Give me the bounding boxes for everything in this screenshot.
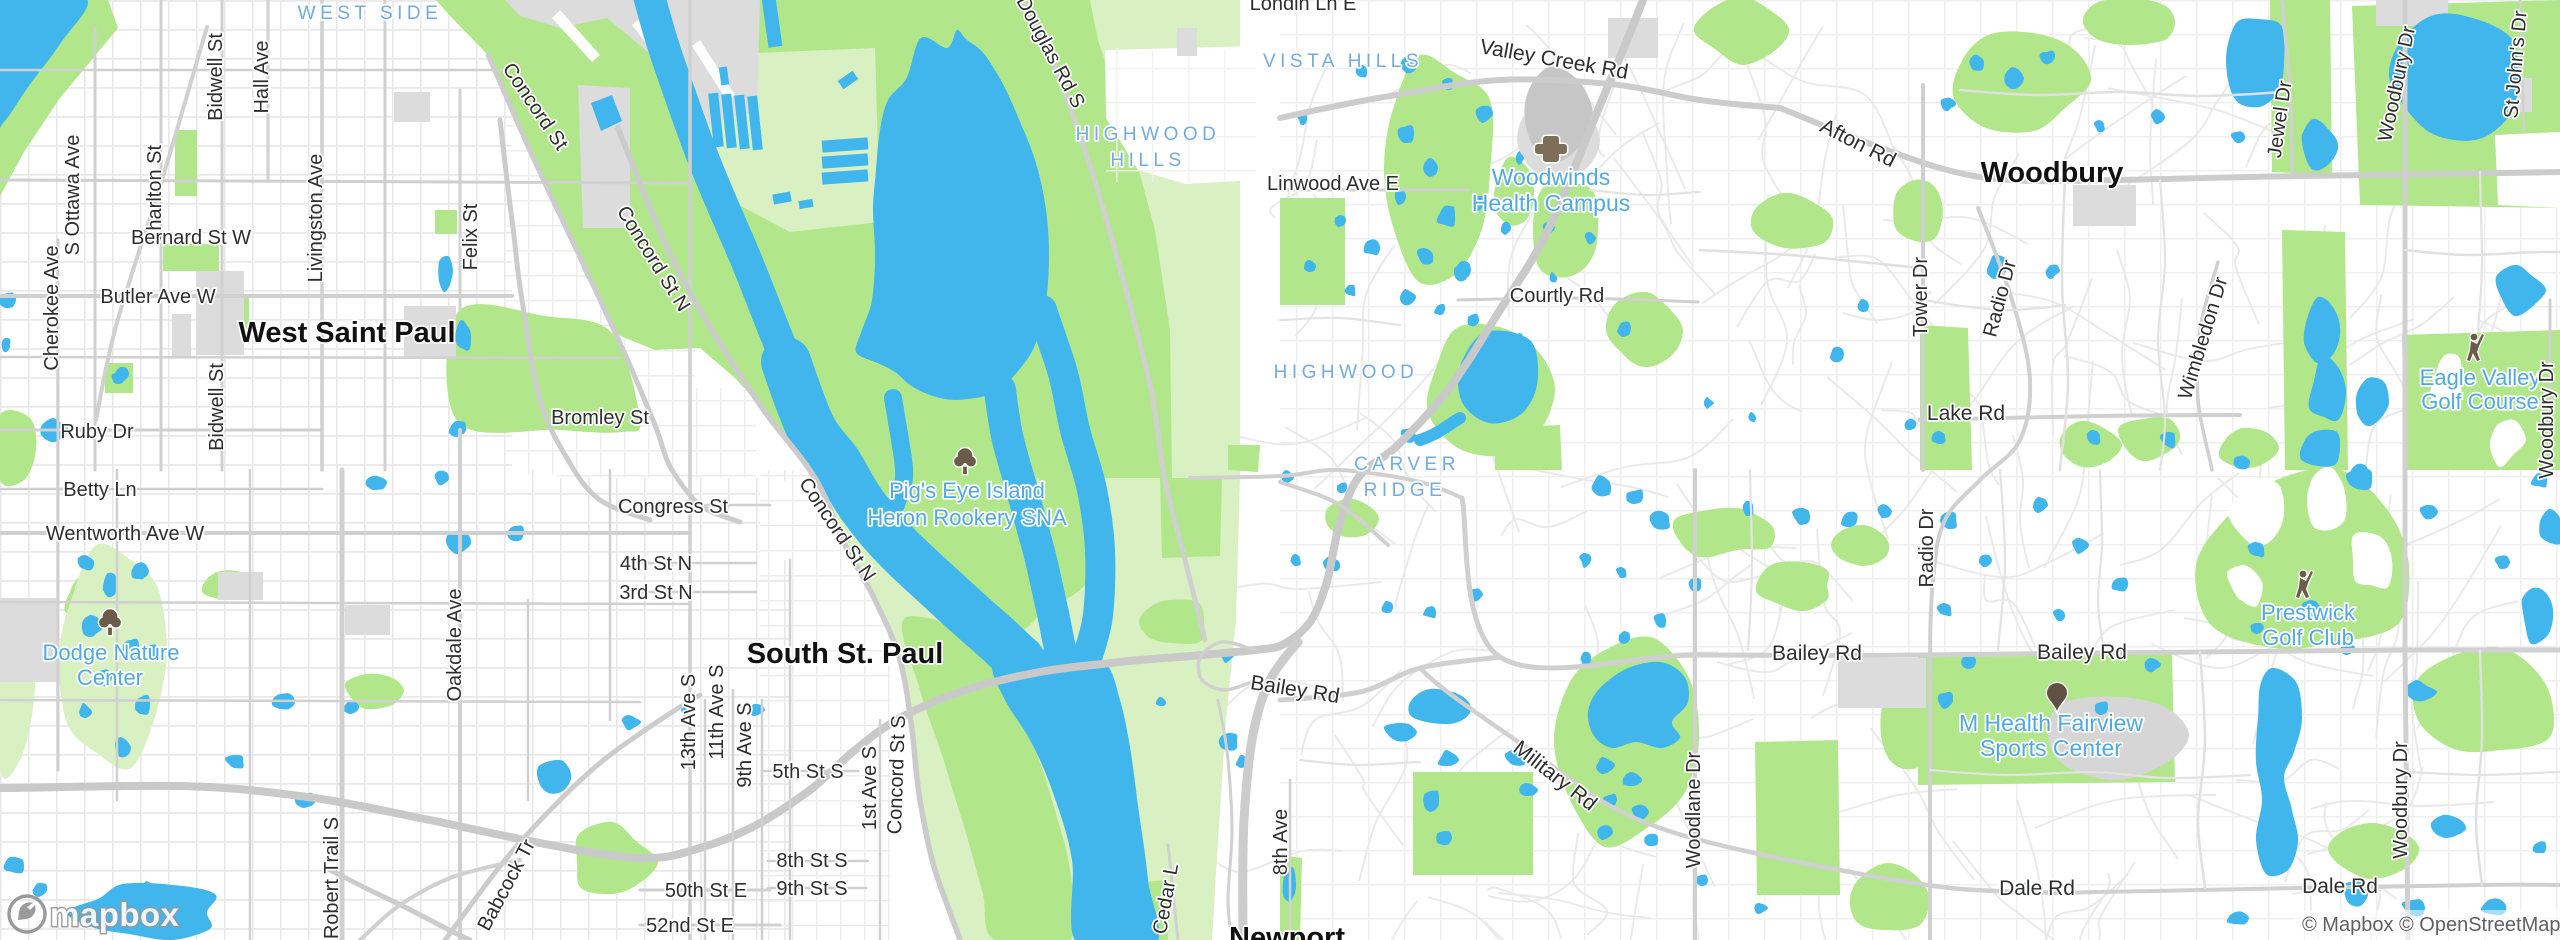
svg-text:Bailey Rd: Bailey Rd [1772,642,1862,665]
svg-text:HIGHWOOD: HIGHWOOD [1076,124,1221,145]
svg-text:50th St E: 50th St E [665,880,747,902]
svg-text:HIGHWOOD: HIGHWOOD [1274,362,1419,383]
svg-text:Felix St: Felix St [460,203,482,270]
svg-text:Congress St: Congress St [618,496,728,518]
svg-text:Betty Ln: Betty Ln [63,479,136,501]
svg-text:S Ottawa Ave: S Ottawa Ave [62,135,84,256]
svg-text:Prestwick: Prestwick [2261,600,2356,625]
svg-text:Wentworth Ave W: Wentworth Ave W [46,523,204,545]
svg-text:5th St S: 5th St S [772,761,843,783]
svg-text:Londin Ln E: Londin Ln E [1250,0,1357,15]
svg-text:Hall Ave: Hall Ave [251,40,273,113]
svg-text:52nd St E: 52nd St E [646,915,734,937]
svg-text:West Saint Paul: West Saint Paul [238,317,455,349]
svg-text:8th Ave: 8th Ave [1270,809,1292,875]
svg-text:11th Ave S: 11th Ave S [706,665,728,760]
svg-text:Golf Course: Golf Course [2421,389,2538,414]
svg-text:9th Ave S: 9th Ave S [734,702,756,787]
svg-text:Robert Trail S: Robert Trail S [321,817,343,939]
svg-text:CARVER: CARVER [1354,454,1460,475]
svg-text:Radio Dr: Radio Dr [1916,508,1938,587]
svg-text:Ruby Dr: Ruby Dr [60,421,134,443]
svg-text:Courtly Rd: Courtly Rd [1510,285,1604,307]
svg-text:Pig's Eye Island: Pig's Eye Island [889,478,1045,503]
svg-text:Dodge Nature: Dodge Nature [43,640,180,665]
svg-text:HILLS: HILLS [1110,150,1185,171]
svg-text:Newport: Newport [1229,922,1345,940]
svg-text:Woodbury Dr: Woodbury Dr [2390,741,2412,859]
svg-text:Bromley St: Bromley St [551,407,649,429]
svg-text:VISTA HILLS: VISTA HILLS [1263,51,1423,72]
svg-text:Woodbury: Woodbury [1981,157,2124,189]
svg-text:4th St N: 4th St N [620,553,692,575]
svg-text:Golf Club: Golf Club [2262,625,2354,650]
svg-text:Center: Center [77,665,143,690]
svg-text:Linwood Ave E: Linwood Ave E [1267,173,1399,195]
svg-text:M Health Fairview: M Health Fairview [1959,710,2143,736]
svg-text:Sports Center: Sports Center [1980,735,2122,761]
svg-text:mapbox: mapbox [50,896,180,933]
svg-text:© Mapbox © OpenStreetMap: © Mapbox © OpenStreetMap [2302,914,2560,936]
svg-text:Oakdale Ave: Oakdale Ave [444,588,466,701]
svg-text:Heron Rookery SNA: Heron Rookery SNA [867,505,1067,530]
svg-text:Woodbury Dr: Woodbury Dr [2536,361,2558,479]
svg-text:9th St S: 9th St S [776,878,847,900]
svg-text:Dale Rd: Dale Rd [2302,875,2378,898]
svg-text:Cherokee Ave: Cherokee Ave [41,245,63,370]
svg-text:Livingston Ave: Livingston Ave [305,154,327,283]
svg-text:Tower Dr: Tower Dr [1910,257,1932,337]
svg-text:Bidwell St: Bidwell St [205,33,227,121]
svg-text:WEST SIDE: WEST SIDE [298,3,443,24]
svg-text:Bernard St W: Bernard St W [131,227,251,249]
svg-text:Lake Rd: Lake Rd [1927,402,2005,425]
svg-text:1st Ave S: 1st Ave S [859,746,881,830]
svg-text:3rd St N: 3rd St N [619,582,692,604]
svg-text:Woodlane Dr: Woodlane Dr [1683,751,1705,868]
svg-text:Health Campus: Health Campus [1472,190,1631,216]
svg-text:South St. Paul: South St. Paul [747,638,944,670]
svg-text:Dale Rd: Dale Rd [1999,877,2075,900]
svg-text:Butler Ave W: Butler Ave W [100,286,215,308]
svg-text:Bidwell St: Bidwell St [206,363,228,451]
svg-text:8th St S: 8th St S [776,850,847,872]
svg-text:Bailey Rd: Bailey Rd [2037,641,2127,664]
svg-text:Concord St S: Concord St S [884,715,910,835]
svg-text:13th Ave S: 13th Ave S [678,674,700,770]
svg-text:Woodwinds: Woodwinds [1492,164,1610,190]
svg-text:RIDGE: RIDGE [1364,480,1447,501]
svg-text:Eagle Valley: Eagle Valley [2420,365,2541,390]
